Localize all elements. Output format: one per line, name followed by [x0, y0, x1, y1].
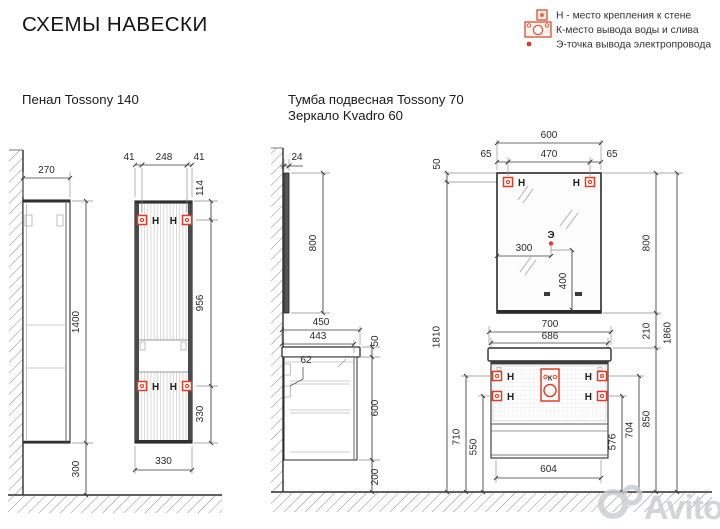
- h-marker-label: Н: [152, 382, 159, 393]
- dim-1400: 1400: [71, 310, 82, 333]
- dim-800-mirror: 800: [642, 234, 653, 251]
- dim-600-mirror: 600: [541, 130, 558, 141]
- water-outlet-icon: К: [541, 369, 559, 401]
- tumba-section: Тумба подвесная Tossony 70 Зеркало Kvadr…: [271, 92, 712, 512]
- wall-mount-icon: [598, 392, 607, 401]
- k-marker-label: К: [548, 374, 553, 383]
- dim-65: 65: [480, 149, 492, 160]
- wall-mount-icon: [493, 372, 502, 381]
- h-marker-label: Н: [573, 178, 580, 189]
- dim-248: 248: [156, 152, 173, 163]
- dim-114: 114: [195, 180, 206, 196]
- wall-mount-icon: [138, 216, 147, 225]
- dim-600-side: 600: [370, 399, 381, 416]
- tumba-wall: [271, 148, 283, 492]
- power-point-legend-icon: [527, 42, 532, 47]
- wall-mount-icon: [493, 392, 502, 401]
- dim-704: 704: [625, 421, 636, 438]
- mounting-schemes-page: СХЕМЫ НАВЕСКИ Н - место крепления к стен…: [0, 0, 720, 529]
- dim-604: 604: [540, 464, 557, 475]
- water-outlet-legend-icon: [525, 22, 551, 37]
- dim-62: 62: [300, 355, 312, 366]
- wall-mount-icon: [138, 382, 147, 391]
- dim-956: 956: [195, 294, 206, 311]
- dim-50-mirror: 50: [432, 158, 443, 170]
- dim-65: 65: [606, 149, 618, 160]
- dim-700: 700: [542, 319, 559, 330]
- dim-1810: 1810: [432, 325, 443, 348]
- h-marker-label: Н: [585, 372, 592, 383]
- h-marker-label: Н: [518, 178, 525, 189]
- penal-front-view: Н Н Н Н: [135, 201, 192, 443]
- penal-floor: [8, 495, 222, 513]
- penal-wall: [9, 150, 23, 495]
- wall-mount-icon: [598, 372, 607, 381]
- h-marker-label: Н: [507, 392, 514, 403]
- power-point-icon: [549, 241, 553, 245]
- wall-mount-legend-icon: [537, 10, 547, 20]
- dim-400-e: 400: [558, 272, 569, 289]
- dim-850: 850: [642, 410, 653, 427]
- dim-41: 41: [193, 152, 205, 163]
- dim-330: 330: [195, 405, 206, 422]
- dim-300: 300: [71, 460, 82, 477]
- mirror-sensor-mark: [575, 292, 582, 296]
- legend-item-wall-mount: Н - место крепления к стене: [556, 11, 691, 22]
- legend-item-water-outlet: К-место вывода воды и слива: [556, 25, 699, 36]
- dim-450: 450: [313, 317, 330, 328]
- dim-710: 710: [452, 428, 463, 445]
- dim-1860: 1860: [663, 321, 674, 344]
- dim-210: 210: [642, 322, 653, 339]
- vanity-front-view: 700 686 Н Н Н Н К: [452, 319, 645, 492]
- dim-576: 576: [608, 433, 619, 450]
- h-marker-label: Н: [152, 216, 159, 227]
- dim-270: 270: [38, 165, 55, 176]
- wall-mount-icon: [183, 382, 192, 391]
- mirror-side-view: 24 800: [280, 152, 330, 313]
- dim-800-side: 800: [308, 234, 319, 251]
- e-marker-label: Э: [547, 230, 554, 241]
- dim-443: 443: [310, 331, 327, 342]
- dim-41: 41: [123, 152, 135, 163]
- tumba-section-title-line1: Тумба подвесная Tossony 70: [288, 92, 464, 107]
- watermark-text: Avito: [644, 489, 720, 527]
- mirror-sensor-mark: [544, 292, 550, 296]
- dim-24: 24: [291, 152, 303, 163]
- wall-mount-icon: [586, 178, 595, 187]
- wall-mount-icon: [183, 216, 192, 225]
- dim-50-side: 50: [370, 335, 381, 347]
- dim-550: 550: [469, 438, 480, 455]
- page-title: СХЕМЫ НАВЕСКИ: [22, 13, 208, 36]
- wall-mount-icon: [504, 178, 513, 187]
- vanity-side-view: 450 443 50 600 200 62: [282, 317, 381, 492]
- dim-470: 470: [541, 149, 558, 160]
- legend: Н - место крепления к стене К-место выво…: [525, 10, 711, 51]
- dim-330-width: 330: [155, 456, 172, 467]
- h-marker-label: Н: [585, 392, 592, 403]
- dim-686: 686: [542, 331, 559, 342]
- dim-200: 200: [370, 468, 381, 485]
- dim-300-e: 300: [516, 243, 533, 254]
- legend-item-power-point: Э-точка вывода электропровода: [556, 40, 711, 51]
- penal-side-view: [23, 200, 70, 443]
- h-marker-label: Н: [507, 372, 514, 383]
- h-marker-label: Н: [170, 382, 177, 393]
- penal-section-title: Пенал Tossony 140: [22, 92, 139, 107]
- mirror-front-view: Н Н 600 65 470 65 Э 300 400: [480, 130, 618, 313]
- tumba-section-title-line2: Зеркало Kvadro 60: [288, 108, 403, 123]
- penal-section: Пенал Tossony 140: [8, 92, 222, 513]
- h-marker-label: Н: [170, 216, 177, 227]
